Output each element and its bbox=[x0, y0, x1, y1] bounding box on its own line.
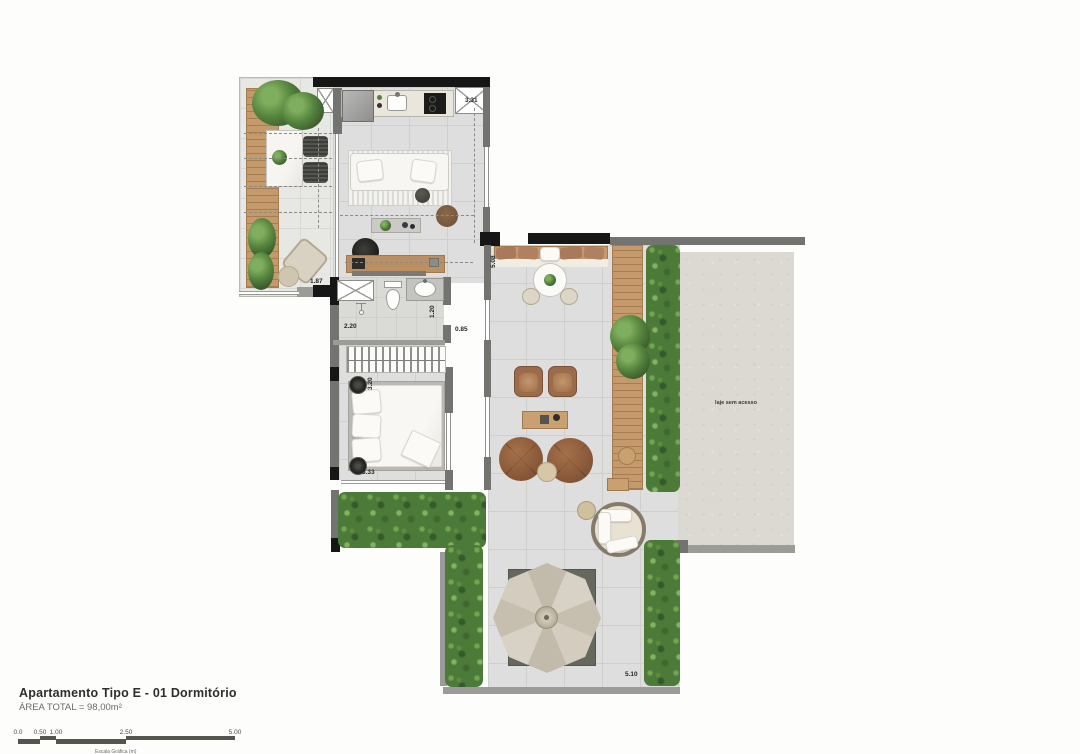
scale-tick: 1.00 bbox=[50, 729, 63, 736]
wall bbox=[445, 367, 453, 413]
wall bbox=[483, 207, 490, 235]
side-table bbox=[415, 188, 430, 203]
window bbox=[484, 397, 491, 457]
cooktop-burner bbox=[429, 96, 436, 103]
coffee-table-decor bbox=[402, 222, 408, 228]
dim-bath-depth: 1.20 bbox=[430, 305, 437, 318]
scale-caption: Escala Gráfica (m) bbox=[95, 749, 136, 754]
dim-bed-length: 3.33 bbox=[362, 470, 375, 477]
projection-line bbox=[340, 215, 474, 216]
dim-kitchen-width: 3.31 bbox=[465, 98, 478, 105]
bed-pillow bbox=[351, 413, 381, 438]
bench-cushion bbox=[560, 246, 583, 260]
window bbox=[484, 300, 491, 340]
coffee-table-bowl bbox=[553, 414, 560, 421]
bench-cushion bbox=[584, 246, 605, 260]
shower-drain bbox=[359, 310, 364, 315]
window bbox=[445, 413, 453, 470]
balcony-glass-rail bbox=[239, 291, 299, 295]
roof-slab-label: laje sem acesso bbox=[678, 400, 794, 406]
round-rug bbox=[436, 205, 458, 227]
refrigerator bbox=[342, 90, 374, 122]
scale-segment bbox=[126, 736, 235, 740]
wall bbox=[483, 87, 490, 147]
dim-bath-width: 2.20 bbox=[344, 324, 357, 331]
title-block: Apartamento Tipo E - 01 Dormitório ÁREA … bbox=[19, 686, 237, 713]
wall bbox=[484, 340, 491, 397]
bench-cushion bbox=[540, 247, 560, 261]
terrace-chair bbox=[522, 288, 540, 305]
scale-tick: 0.50 bbox=[34, 729, 47, 736]
daybed-step bbox=[607, 478, 629, 491]
pouf-side-table bbox=[537, 462, 557, 482]
floor-plan-page: laje sem acesso bbox=[0, 0, 1080, 754]
desk-laptop bbox=[352, 258, 365, 269]
dim-terrace-width: 5.10 bbox=[625, 672, 638, 679]
deck-side-table bbox=[618, 447, 636, 465]
dim-balcony-width: 1.87 bbox=[310, 279, 323, 286]
table-plant bbox=[544, 274, 556, 286]
balcony-pouf bbox=[278, 266, 299, 287]
side-planter bbox=[445, 545, 483, 687]
bedside-speaker bbox=[349, 376, 367, 394]
cooktop-burner bbox=[429, 105, 436, 112]
scale-segment bbox=[40, 736, 56, 740]
scale-tick: 0.0 bbox=[13, 729, 22, 736]
balcony-plant bbox=[248, 252, 274, 290]
balcony-plant bbox=[282, 92, 324, 130]
roof-slab bbox=[678, 252, 794, 545]
sliding-glass-door bbox=[335, 134, 339, 284]
bench-cushion bbox=[518, 246, 539, 259]
wall bbox=[330, 381, 339, 467]
wall bbox=[443, 277, 451, 305]
scale-segment bbox=[18, 740, 40, 744]
coffee-table-decor bbox=[410, 224, 415, 229]
sink-faucet bbox=[395, 92, 400, 97]
roof-slab-top-wall bbox=[610, 237, 805, 245]
bedroom-window-sill bbox=[341, 480, 445, 484]
coffee-table-tray bbox=[540, 415, 549, 424]
wall bbox=[330, 305, 339, 367]
wall bbox=[445, 470, 453, 490]
plan-title: Apartamento Tipo E - 01 Dormitório bbox=[19, 686, 237, 700]
shower bbox=[337, 280, 374, 301]
wall bbox=[333, 340, 445, 345]
sofa-pillow bbox=[410, 158, 438, 183]
wall bbox=[528, 233, 610, 244]
scale-tick: 5.00 bbox=[229, 729, 242, 736]
umbrella-pole-center bbox=[544, 615, 549, 620]
scale-tick: 2.50 bbox=[120, 729, 133, 736]
projection-line bbox=[474, 108, 475, 243]
wall bbox=[330, 367, 339, 381]
wall bbox=[330, 467, 339, 480]
terrace-hedge bbox=[644, 540, 680, 686]
vanity-sink bbox=[414, 281, 436, 297]
window bbox=[483, 147, 490, 207]
plan-area: ÁREA TOTAL = 98,00m² bbox=[19, 702, 237, 713]
wall bbox=[484, 245, 491, 300]
toilet-tank bbox=[384, 281, 402, 288]
dining-chair bbox=[303, 162, 328, 183]
dining-chair bbox=[303, 136, 328, 157]
wall bbox=[297, 287, 314, 297]
terrace-armchair bbox=[548, 366, 577, 397]
coffee-table-plant bbox=[380, 220, 391, 231]
daybed-cushion bbox=[598, 512, 611, 544]
kitchen-bottle bbox=[377, 103, 382, 108]
desk-runner bbox=[352, 271, 426, 276]
closet-hangers bbox=[346, 346, 446, 373]
scale-segment bbox=[56, 740, 126, 744]
terrace-palm-plant bbox=[616, 343, 650, 379]
dim-bath-door: 0.85 bbox=[455, 327, 468, 334]
wall bbox=[484, 457, 491, 490]
terrace-chair bbox=[560, 288, 578, 305]
scale-bar: 0.0 0.50 1.00 2.50 5.00 Escala Gráfica (… bbox=[0, 727, 260, 754]
terrace-hedge bbox=[646, 245, 680, 492]
dim-bed-width: 3.20 bbox=[368, 377, 375, 390]
wall bbox=[443, 687, 680, 694]
sofa-pillow bbox=[356, 158, 384, 182]
wall bbox=[313, 77, 490, 87]
dim-terrace-depth: 5.08 bbox=[491, 255, 498, 268]
vanity-faucet bbox=[423, 279, 427, 283]
projection-line bbox=[345, 262, 473, 263]
roof-slab-bottom-wall bbox=[676, 545, 795, 553]
bedroom-planter bbox=[338, 492, 486, 548]
terrace-armchair bbox=[514, 366, 543, 397]
projection-line bbox=[318, 128, 319, 228]
kitchen-bottle bbox=[377, 95, 382, 100]
kitchen-sink bbox=[387, 95, 407, 111]
wall bbox=[480, 232, 500, 246]
bench-cushion bbox=[496, 246, 517, 260]
